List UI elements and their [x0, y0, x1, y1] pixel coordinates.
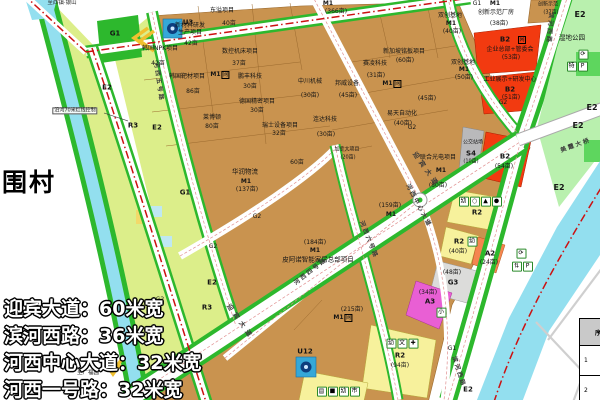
parcel-label: 双创基地 — [438, 13, 462, 19]
zone-code-r2: R2 — [454, 238, 464, 245]
landuse-tag: M1网 — [210, 71, 229, 79]
zone-code-b2: B2 — [505, 86, 515, 93]
parcel-area: (53亩) — [502, 55, 520, 61]
landuse-tag: M1网 — [382, 80, 401, 88]
square-icon: ■ — [328, 386, 338, 396]
parcel-area: (10亩) — [463, 159, 478, 164]
parcel-area: (94亩) — [391, 363, 409, 369]
grid-icon: ▤ — [317, 386, 327, 396]
parcel-label: 邦威设备 — [335, 81, 359, 87]
bus-icon: 特 — [567, 61, 577, 71]
zone-code-g1: G1 — [110, 30, 121, 37]
parcel-area: (54亩) — [495, 164, 513, 170]
landuse-code: M1 — [241, 179, 251, 185]
zone-code-e2: E2 — [572, 122, 583, 130]
parcel-area: 86亩 — [186, 89, 200, 95]
parcel-area: (215亩) — [341, 307, 363, 313]
zone-code-e2: E2 — [463, 386, 473, 393]
parcel-area: 30亩 — [243, 84, 257, 90]
parcel-label: 创新示范 — [538, 2, 558, 7]
landuse-tag: M1网 — [333, 314, 352, 322]
parcel-area: (31亩) — [367, 73, 385, 79]
boxed-tag: 网 — [394, 80, 402, 88]
parcel-area: (40亩) — [394, 121, 412, 127]
parcel-area: 60亩 — [290, 160, 304, 166]
landuse-code: M1 — [446, 21, 456, 27]
parking-icon: P — [523, 261, 533, 271]
road-width-line3: 河西中心大道：32米宽 — [4, 348, 201, 375]
primary-school-icon: 小 — [436, 307, 446, 317]
parcel-area: (45亩) — [418, 96, 436, 102]
triangle-icon: ▲ — [481, 196, 491, 206]
parcel-label: 加拿大项目 — [334, 147, 359, 152]
zone-code-g3: G3 — [448, 279, 459, 286]
landuse-code: M1 — [333, 315, 343, 321]
zone-code-s4: S4 — [466, 150, 476, 157]
parcel-area: (20亩) — [340, 155, 355, 160]
redline-note: 沿河70米红线控制 — [52, 107, 97, 114]
parcel-label: 数控机床项目 — [222, 49, 258, 55]
zone-code-e2: E2 — [586, 104, 597, 112]
parcel-area: (45亩) — [339, 93, 357, 99]
parcel-label: 连达科技 — [313, 117, 337, 123]
zone-code-g1: G1 — [180, 189, 191, 196]
facility-icon: 小 — [436, 304, 447, 321]
parcel-area: 40亩 — [222, 21, 236, 27]
parcel-label: 企业总部+管委会 — [486, 47, 533, 53]
parcel-area: (366亩) — [325, 9, 347, 15]
zone-code-r2: R2 — [395, 352, 405, 359]
parcel-label: 易天自动化 — [387, 111, 417, 117]
zone-code-r3: R3 — [202, 304, 212, 311]
landuse-code: M1 — [490, 1, 500, 7]
parcel-area: (60亩) — [396, 58, 414, 64]
legend-table-row: 2 — [580, 376, 600, 400]
kindergarten-icon: 幼 — [467, 236, 477, 246]
parcel-label: 公交站场 — [463, 140, 483, 145]
circle-icon: ○ — [470, 196, 480, 206]
dest-sign-top: 至西镇·银山 — [47, 1, 76, 7]
landuse-code: M1 — [459, 67, 469, 73]
wetland-label: 湿地公园 — [559, 35, 585, 42]
zone-code-g1: G1 — [473, 1, 481, 7]
pair-icon: ⇅ — [512, 261, 522, 271]
facility-icon-row: ▤■幼市 — [316, 383, 360, 400]
parcel-area: (38亩) — [490, 21, 508, 27]
parcel-area: 37亩 — [232, 61, 246, 67]
parcel-area: 80亩 — [205, 124, 219, 130]
zone-code-u12: U12 — [297, 348, 312, 355]
landuse-code: M1 — [310, 248, 320, 254]
parcel-label: 华润物流 — [232, 169, 258, 176]
parcel-area: (30亩) — [317, 132, 335, 138]
parcel-area: 32亩 — [272, 131, 286, 137]
zone-code-g2: G2 — [209, 244, 217, 250]
parcel-area: (40亩) — [449, 249, 467, 255]
culture-icon: 文 — [397, 338, 407, 348]
parcel-area: (51亩) — [502, 95, 520, 101]
landuse-code: M1 — [210, 72, 220, 78]
parcel-label: 联合光电项目 — [420, 155, 456, 161]
facility-icon-row: ⇅P — [511, 258, 533, 275]
parcel-area: 42亩 — [184, 41, 198, 47]
pump-station-icon-core — [304, 365, 308, 369]
road-width-line2: 滨河西路：36米宽 — [4, 321, 163, 348]
boxed-tag: 网 — [518, 36, 526, 44]
dot-icon: ● — [492, 196, 502, 206]
zone-code-e2: E2 — [574, 11, 585, 19]
legend-table-row: 1 — [580, 346, 600, 376]
boxed-tag: 网 — [222, 71, 230, 79]
zone-code-r2: R2 — [472, 209, 482, 216]
parcel-label: 韩国NPK项目 — [142, 46, 178, 52]
parcel-label: 东溢项目 — [210, 8, 234, 14]
parcel-label: 创新示范厂房 — [478, 10, 514, 16]
parcel-label: 德国精密项目 — [239, 99, 275, 105]
planning-map: 至西镇·银山 G1 U3 E2 R3 E2 沿河70米红线控制 E2 R3 至广… — [0, 0, 600, 400]
zone-code-g1: G1 — [448, 346, 456, 352]
parcel-label: 赛凌科技 — [363, 61, 387, 67]
facility-icon-row: 幼文✚ — [386, 335, 419, 352]
medical-icon: ✚ — [408, 338, 418, 348]
market-icon: 市 — [350, 386, 360, 396]
road-width-line4: 河西一号路：32米宽 — [4, 375, 182, 400]
zone-code-a3: A3 — [425, 298, 435, 305]
facility-icon: 幼 — [467, 233, 478, 250]
parking-icon: P — [578, 61, 588, 71]
zone-code-e2: E2 — [553, 184, 564, 192]
parcel-area: 30亩 — [250, 108, 264, 114]
pump-station-icon-core — [171, 27, 175, 31]
boxed-tag: 网 — [345, 314, 353, 322]
village-label: 围村 — [2, 163, 56, 199]
zone-code-e2: E2 — [152, 124, 162, 131]
parcel-area: (184亩) — [304, 240, 326, 246]
parcel-label: 瑞士设备项目 — [262, 123, 298, 129]
parcel-area: (30亩) — [301, 93, 319, 99]
landuse-code: M1 — [436, 168, 446, 174]
facility-icon-row: 特P — [566, 58, 588, 75]
zone-code-e2: E2 — [102, 84, 112, 91]
recycle-icon: ⟳ — [516, 248, 526, 258]
parcel-area: (48亩) — [443, 270, 461, 276]
legend-table-header: 序号 — [580, 319, 600, 346]
parcel-label: 工业展示+研发中心 — [483, 77, 536, 83]
parcel-area: (40亩) — [443, 29, 461, 35]
parcel-label: 生产项目 — [178, 30, 202, 36]
zone-code-b2: B2 — [500, 153, 510, 160]
parcel-area: (24亩) — [480, 260, 498, 266]
parcel-area: (34亩) — [419, 290, 437, 296]
road-width-line1: 迎宾大道：60米宽 — [4, 294, 163, 321]
parcel-label: 中川机械 — [298, 79, 322, 85]
parcel-area: (50亩) — [455, 75, 473, 81]
kindergarten-icon: 幼 — [459, 196, 469, 206]
landuse-code: M1 — [386, 212, 396, 218]
kindergarten-icon: 幼 — [339, 386, 349, 396]
legend-table: 序号 1 2 — [579, 318, 600, 400]
zone-code-a2: A2 — [485, 250, 495, 257]
kindergarten-icon: 幼 — [386, 338, 396, 348]
parcel-label: 新加坡铭板项目 — [383, 49, 425, 55]
parcel-label: 韩国靶材项目 — [169, 74, 205, 80]
landuse-code: M1 — [323, 1, 333, 7]
zone-code-e2: E2 — [207, 279, 217, 286]
zone-code-g2: G2 — [253, 214, 261, 220]
zone-code-r3: R3 — [128, 122, 138, 129]
zone-code-b2: B2 — [500, 36, 510, 43]
parcel-area: (159亩) — [379, 203, 401, 209]
parcel-area: (137亩) — [236, 187, 258, 193]
parcel-label: 莱博顿 — [203, 115, 221, 121]
facility-icon-row: 幼○▲● — [458, 193, 502, 210]
parcel-label: 鹏丰科技 — [238, 74, 262, 80]
landuse-code: M1 — [382, 81, 392, 87]
